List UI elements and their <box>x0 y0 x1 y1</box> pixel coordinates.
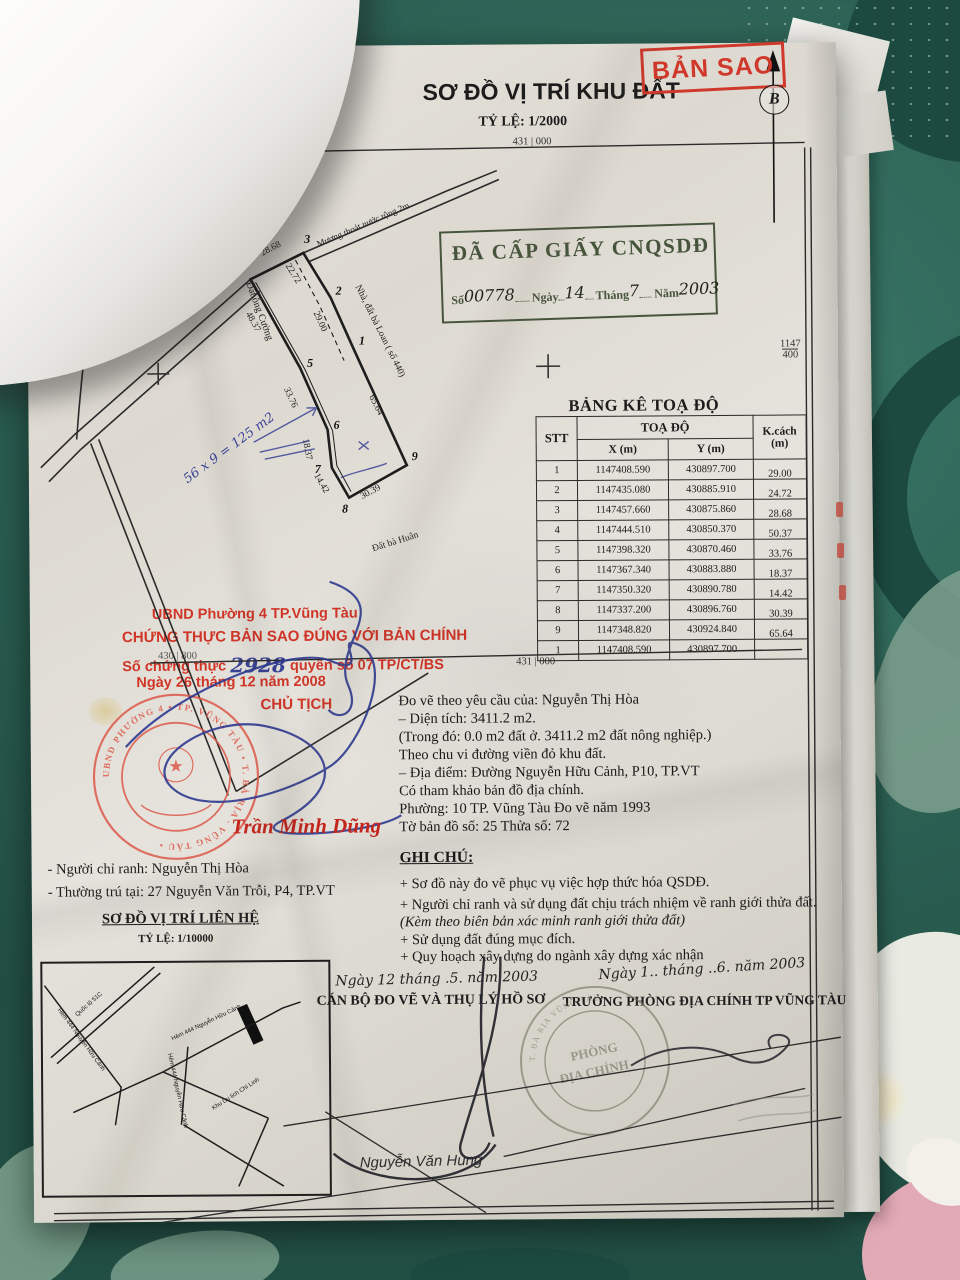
bottom-drawn-lines <box>63 1037 842 1223</box>
handwritten-number: 00778 <box>464 285 516 306</box>
edge-red-mark <box>836 502 843 517</box>
fabric-dark-ring <box>855 320 960 674</box>
fabric-cream-flower <box>842 1068 908 1128</box>
fabric-dark-bottom <box>410 1248 630 1280</box>
cnqsdd-stamp: ĐÃ CẤP GIẤY CNQSDĐ Số00778 Ngày14 Tháng7… <box>439 222 718 323</box>
edge-red-mark <box>839 585 846 600</box>
cnqsdd-stamp-title: ĐÃ CẤP GIẤY CNQSDĐ <box>451 233 710 267</box>
handwritten-month: 7 <box>629 281 640 300</box>
cnqsdd-stamp-fields: Số00778 Ngày14 Tháng7 Năm2003 <box>451 280 720 308</box>
fabric-dark-leaf-top <box>818 0 960 190</box>
surveyor-signature <box>332 957 502 1180</box>
certify-signer-name: Trần Minh Dũng <box>231 813 381 839</box>
handwritten-year: 2003 <box>678 278 719 298</box>
ban-sao-label: BẢN SAO <box>651 50 775 85</box>
edge-red-mark <box>837 543 844 558</box>
fabric-pink-flower <box>862 1170 960 1280</box>
north-indicator: B <box>759 85 789 115</box>
survey-cross-marks <box>147 354 560 385</box>
fabric-leaf-bottom <box>106 1221 284 1280</box>
chief-stamp-line2: ĐỊA CHÍNH <box>558 1057 630 1087</box>
seal-ring-text: UBND PHƯỜNG 4 • TP. VŨNG TÀU • T. BÀ RỊA… <box>100 701 251 852</box>
fabric-flower-petal <box>895 1125 960 1219</box>
chief-signature <box>631 1035 789 1066</box>
fabric-sage-leaf-right <box>839 539 960 841</box>
pencil-marks <box>733 1094 815 1121</box>
seal-star: ★ <box>168 757 183 776</box>
plot-boundary <box>250 252 407 498</box>
inset-roads <box>44 966 302 1188</box>
blue-ink-marks <box>253 407 386 478</box>
photo-scene: UBND PHƯỜNG 4 • TP. VŨNG TÀU • T. BÀ RỊA… <box>0 0 960 1280</box>
chief-stamp: T. BÀ RỊA VŨNG TÀU PHÒNG ĐỊA CHÍNH <box>520 986 669 1135</box>
handwritten-day: 14 <box>564 283 585 303</box>
